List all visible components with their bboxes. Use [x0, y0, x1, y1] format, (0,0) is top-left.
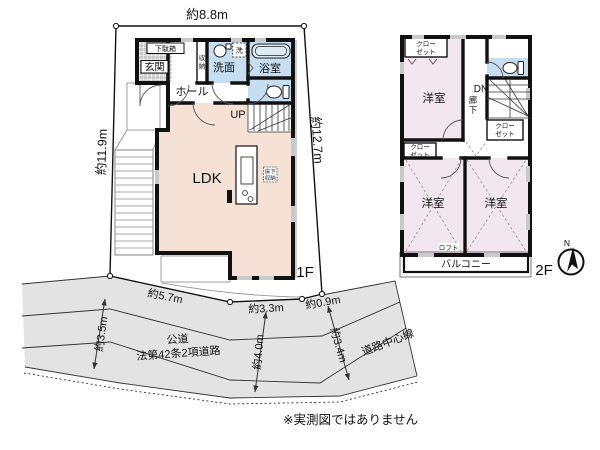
rear-porch	[161, 256, 230, 282]
dim-left-label: 約11.9m	[93, 129, 110, 176]
boundary-point	[107, 273, 112, 278]
window	[291, 206, 295, 222]
disclaimer-note: ※実測図ではありません	[283, 412, 418, 427]
window	[418, 253, 434, 257]
svg-text:収: 収	[199, 54, 206, 62]
svg-text:納: 納	[199, 61, 206, 70]
corridor-label: 廊 下	[469, 95, 478, 115]
window	[400, 166, 404, 182]
entrance-labelbox: 玄関	[141, 60, 168, 73]
stairs-down-label: DN	[474, 84, 488, 95]
front-door-arc	[140, 85, 161, 106]
svg-text:ゼット: ゼット	[416, 47, 436, 56]
floorplan-canvas: 約3.5m 約4.0m 約3.4m 公道 法第42条2項道路 道路中心線 約8.…	[0, 0, 600, 450]
balcony-label: バルコニー	[441, 259, 491, 271]
window	[484, 253, 500, 257]
entrance-label: 玄関	[145, 60, 165, 73]
window	[181, 38, 193, 42]
window	[155, 170, 159, 184]
window	[492, 35, 506, 39]
window	[291, 138, 295, 156]
floor2-label: 2F	[535, 262, 553, 279]
window	[526, 88, 530, 100]
toilet-icon-1f	[267, 86, 290, 99]
svg-text:廊: 廊	[469, 95, 478, 105]
floor-storage-line1: 床下	[265, 168, 277, 176]
boundary-point	[227, 299, 232, 304]
washer-label: 洗	[236, 46, 243, 55]
floor1-plan: 洗 床下 収納 下駄箱 玄関	[115, 38, 314, 297]
floor-storage-line2: 収納	[265, 174, 277, 182]
window	[231, 38, 242, 42]
shoe-cabinet-box: 下駄箱	[147, 43, 184, 54]
floorplan-page: 約3.5m 約4.0m 約3.4m 公道 法第42条2項道路 道路中心線 約8.…	[0, 0, 600, 450]
floor2-plan: クロー ゼット クロー ゼット クロー ゼット 洋室 洋室 洋室 DN 廊 下 …	[400, 35, 553, 279]
western-room-3-label: 洋室	[485, 196, 508, 210]
washer-box: 洗	[233, 43, 247, 57]
window	[255, 38, 266, 42]
entrance-porch	[127, 83, 160, 130]
compass-north-label: N	[564, 238, 570, 248]
dim-top-label: 約8.8m	[186, 7, 228, 22]
boundary-point	[113, 23, 118, 28]
window	[526, 166, 530, 182]
road-name-line1: 公道	[166, 331, 189, 347]
hall-label: ホール	[176, 85, 209, 98]
compass-icon: N	[559, 238, 584, 275]
washroom-label: 洗面	[213, 61, 235, 74]
loft-label: ロフト	[438, 243, 459, 252]
window	[400, 214, 404, 230]
western-room-1-label: 洋室	[423, 91, 446, 105]
window	[450, 35, 466, 39]
ldk-label: LDK	[192, 170, 221, 187]
window	[412, 35, 424, 39]
window	[259, 276, 274, 280]
western-room-2-label: 洋室	[422, 196, 445, 210]
svg-text:ロフト: ロフト	[439, 244, 459, 252]
bathroom-label: 浴室	[259, 61, 281, 75]
svg-text:クロー: クロー	[410, 143, 430, 151]
svg-text:ゼット: ゼット	[410, 150, 430, 159]
floor-storage-box: 床下 収納	[264, 167, 278, 182]
svg-text:クロー: クロー	[495, 122, 515, 130]
shoe-cabinet-label: 下駄箱	[155, 44, 176, 53]
window	[526, 214, 530, 230]
svg-text:クロー: クロー	[416, 40, 436, 48]
window	[237, 276, 252, 280]
toilet-icon-2f	[503, 62, 524, 75]
svg-text:ゼット: ゼット	[495, 129, 515, 138]
boundary-point	[301, 23, 306, 28]
dim-right-label: 約12.7m	[308, 116, 326, 164]
bathtub-icon	[252, 44, 290, 58]
svg-text:下: 下	[469, 105, 478, 115]
window	[400, 62, 404, 74]
outdoor-stairs	[115, 150, 153, 255]
road-area: 約3.5m 約4.0m 約3.4m 公道 法第42条2項道路 道路中心線	[22, 276, 418, 404]
floor1-label: 1F	[296, 264, 314, 281]
stairs-up-label: UP	[230, 109, 245, 121]
